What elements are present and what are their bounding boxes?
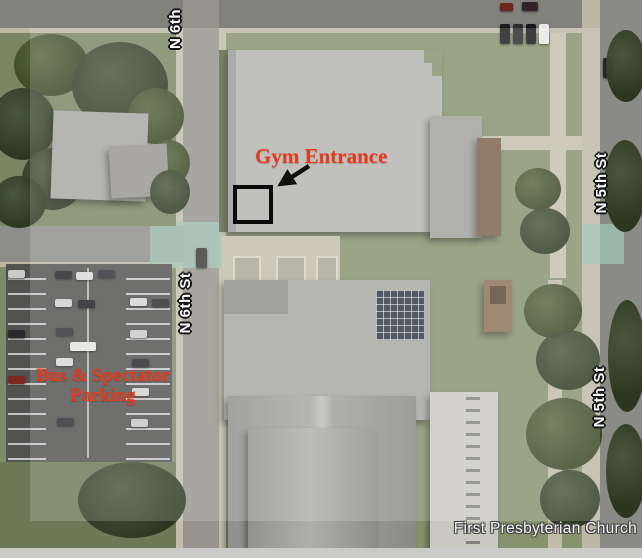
street-label-n6th-top: N 6th bbox=[167, 0, 185, 64]
car bbox=[8, 330, 25, 338]
parking-label-line2: Parking bbox=[28, 386, 178, 406]
highlight-overlay bbox=[30, 28, 600, 521]
street-label-n6th-left: N 6th St bbox=[177, 258, 195, 348]
map-watermark: First Presbyterian Church bbox=[454, 520, 637, 538]
page-edge-strip bbox=[0, 548, 642, 558]
tree bbox=[606, 30, 642, 102]
car bbox=[500, 3, 513, 11]
gym-entrance-marker-square bbox=[233, 185, 273, 224]
tree bbox=[608, 300, 642, 412]
parking-label: Bus & Spectator Parking bbox=[28, 366, 178, 406]
car bbox=[8, 270, 25, 278]
satellite-map: Gym Entrance Bus & Spectator Parking N 6… bbox=[0, 0, 642, 558]
car bbox=[8, 376, 25, 384]
tree bbox=[606, 424, 642, 518]
street-label-n5th-lower: N 5th St bbox=[591, 351, 609, 443]
car bbox=[522, 2, 538, 11]
street-label-n5th-upper: N 5th St bbox=[593, 137, 611, 229]
parking-label-line1: Bus & Spectator bbox=[28, 366, 178, 386]
gym-entrance-label: Gym Entrance bbox=[255, 144, 387, 169]
